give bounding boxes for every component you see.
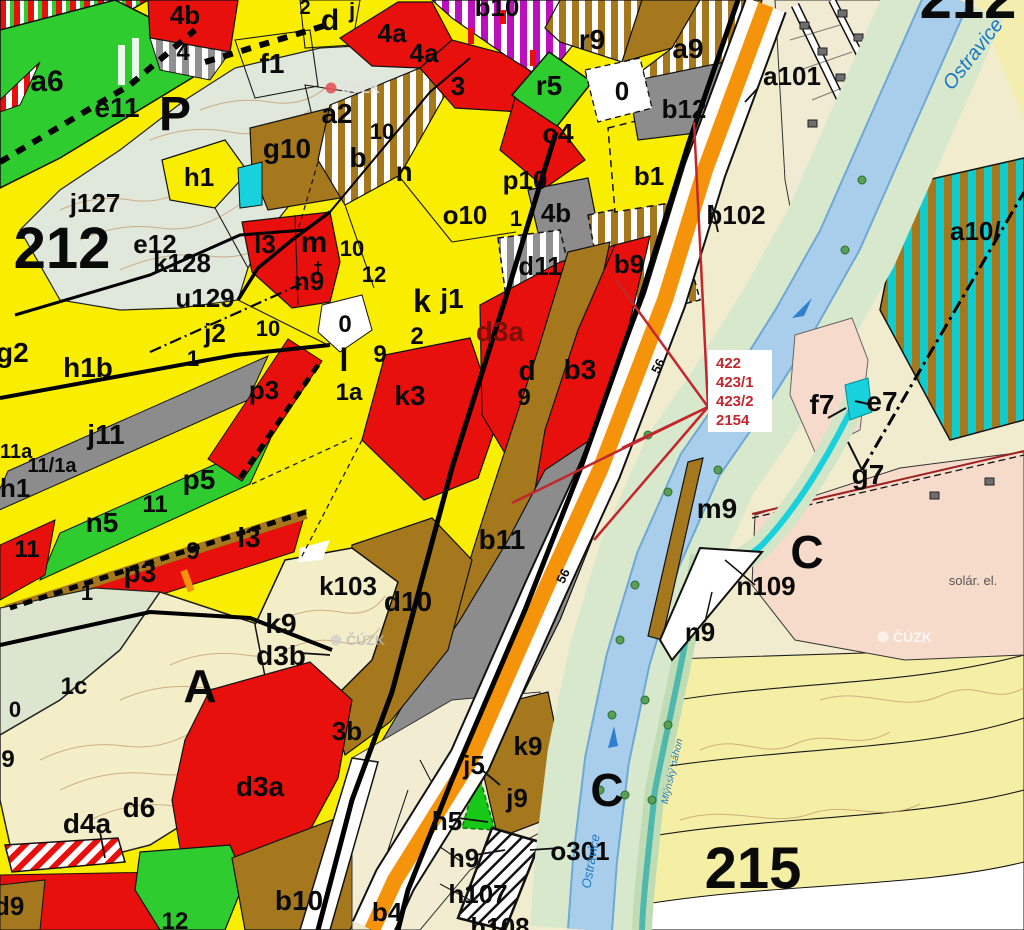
map-label: n9 bbox=[685, 617, 715, 647]
watermark: ČÚZK bbox=[346, 631, 385, 648]
map-label: c4 bbox=[542, 118, 574, 149]
map-label: n bbox=[395, 156, 412, 187]
map-label: j9 bbox=[505, 783, 528, 813]
map-label: b10 bbox=[275, 885, 323, 916]
annotation-parcel-number: 423/1 bbox=[716, 374, 754, 391]
map-label: h1b bbox=[63, 352, 113, 383]
map-label: d6 bbox=[123, 792, 156, 823]
map-label: n109 bbox=[736, 571, 795, 601]
map-label: p3 bbox=[124, 557, 157, 588]
map-label: d3a bbox=[476, 316, 525, 347]
map-label: h107 bbox=[448, 879, 507, 909]
map-label: b11 bbox=[479, 524, 526, 555]
map-label: 2 bbox=[299, 0, 310, 19]
map-label: g7 bbox=[852, 459, 885, 490]
map-label: 9 bbox=[373, 341, 386, 368]
map-label: 1a bbox=[336, 379, 363, 406]
map-label: h9 bbox=[449, 843, 479, 873]
watermark: ČÚZK bbox=[341, 79, 380, 96]
map-label: 9 bbox=[186, 538, 199, 565]
map-label: 11 bbox=[142, 491, 167, 518]
map-label: o10 bbox=[443, 200, 488, 230]
map-label: 0 bbox=[9, 697, 21, 722]
map-label: j11 bbox=[86, 419, 124, 450]
map-label: j2 bbox=[203, 318, 226, 348]
map-label: 10 bbox=[340, 236, 364, 261]
map-label: a2 bbox=[321, 98, 352, 129]
map-label: 1 bbox=[187, 346, 199, 371]
map-label: 1 bbox=[81, 580, 93, 605]
zone-label: P bbox=[159, 88, 191, 141]
district-number: 215 bbox=[705, 836, 802, 901]
map-label: 0 bbox=[338, 311, 351, 338]
map-label: 2 bbox=[410, 323, 423, 350]
map-label: 4b bbox=[170, 0, 200, 30]
watermark: ČÚZK bbox=[893, 628, 932, 645]
map-label: k9 bbox=[265, 608, 296, 639]
map-label: j5 bbox=[462, 750, 485, 780]
map-label: 11 bbox=[14, 536, 39, 563]
map-label: d4a bbox=[63, 808, 112, 839]
map-label: 3 bbox=[451, 71, 465, 101]
cadastral-zoning-map: 422423/1423/22154 212212215PACCa6e11h1f1… bbox=[0, 0, 1024, 930]
map-label: j127 bbox=[69, 188, 121, 218]
map-label: k103 bbox=[319, 571, 377, 601]
map-label: a6 bbox=[30, 65, 63, 98]
zone-label: A bbox=[183, 660, 216, 712]
annotation-parcel-number: 2154 bbox=[716, 412, 750, 429]
map-label: 4b bbox=[541, 198, 571, 228]
map-label: p3 bbox=[249, 375, 279, 405]
map-label: b12 bbox=[662, 94, 707, 124]
zone-label: C bbox=[590, 764, 623, 816]
map-label: 1 bbox=[510, 206, 522, 231]
map-label: a10/ bbox=[950, 216, 1001, 246]
map-label: b bbox=[349, 142, 366, 173]
map-label: 4a bbox=[410, 38, 439, 68]
map-label: d3b bbox=[256, 640, 306, 671]
map-label: k9 bbox=[514, 731, 543, 761]
map-label: r9 bbox=[579, 24, 605, 55]
map-label: p10 bbox=[503, 165, 548, 195]
map-label: 4a bbox=[378, 18, 407, 48]
map-label: 10 bbox=[370, 119, 394, 144]
map-label: b10 bbox=[475, 0, 520, 22]
map-label: 9 bbox=[1, 746, 14, 773]
map-label: d3a bbox=[236, 771, 285, 802]
map-label: 3b bbox=[332, 716, 362, 746]
map-label: l bbox=[340, 342, 349, 378]
map-label: d bbox=[321, 4, 339, 37]
map-label: f7 bbox=[810, 389, 835, 420]
annotation-parcel-number: 422 bbox=[716, 355, 741, 372]
map-label: b102 bbox=[706, 200, 765, 230]
map-label: h108 bbox=[470, 912, 529, 930]
map-label: 12 bbox=[362, 262, 386, 287]
map-label: h1 bbox=[0, 473, 30, 503]
map-label: h1 bbox=[184, 162, 214, 192]
district-number: 212 bbox=[14, 216, 111, 281]
map-label: 12 bbox=[162, 908, 189, 930]
map-label: k3 bbox=[394, 380, 425, 411]
map-label: a101 bbox=[763, 61, 821, 91]
map-canvas: 422423/1423/22154 212212215PACCa6e11h1f1… bbox=[0, 0, 1024, 930]
map-label: l3 bbox=[254, 229, 276, 259]
map-label: j1 bbox=[439, 283, 463, 314]
map-label: a9 bbox=[672, 33, 703, 64]
map-label: h5 bbox=[432, 806, 462, 836]
map-label: n5 bbox=[86, 507, 119, 538]
map-label: k bbox=[413, 283, 431, 319]
annotation-parcel-number: 423/2 bbox=[716, 393, 754, 410]
map-label: g10 bbox=[263, 133, 311, 164]
map-label: b3 bbox=[564, 354, 597, 385]
map-label: f1 bbox=[260, 48, 285, 79]
map-label: d9 bbox=[0, 891, 24, 921]
map-label: d10 bbox=[384, 586, 432, 617]
map-label: n9 bbox=[294, 266, 324, 296]
map-label: b9 bbox=[614, 249, 644, 279]
map-label: 11/1a bbox=[28, 455, 78, 477]
map-label: d bbox=[518, 355, 535, 386]
map-label: l3 bbox=[237, 522, 260, 553]
map-label: 4 bbox=[176, 39, 190, 66]
map-label: e11 bbox=[94, 92, 139, 123]
map-label: b4 bbox=[372, 897, 403, 927]
map-label: 0 bbox=[615, 76, 629, 106]
map-label: 9 bbox=[517, 384, 530, 411]
solar-label: solár. el. bbox=[949, 573, 997, 588]
map-label: 1c bbox=[61, 673, 88, 700]
map-label: m9 bbox=[697, 493, 737, 524]
map-label: 10 bbox=[256, 316, 280, 341]
map-label: e7 bbox=[866, 386, 897, 417]
map-label: j bbox=[348, 0, 355, 23]
map-label: b1 bbox=[634, 161, 664, 191]
map-label: k128 bbox=[153, 248, 211, 278]
map-label: m bbox=[301, 226, 328, 259]
map-label: d11 bbox=[518, 251, 561, 281]
map-label: u129 bbox=[175, 283, 234, 313]
map-label: p5 bbox=[183, 464, 216, 495]
map-label: g2 bbox=[0, 337, 29, 368]
map-label: r5 bbox=[536, 70, 562, 101]
